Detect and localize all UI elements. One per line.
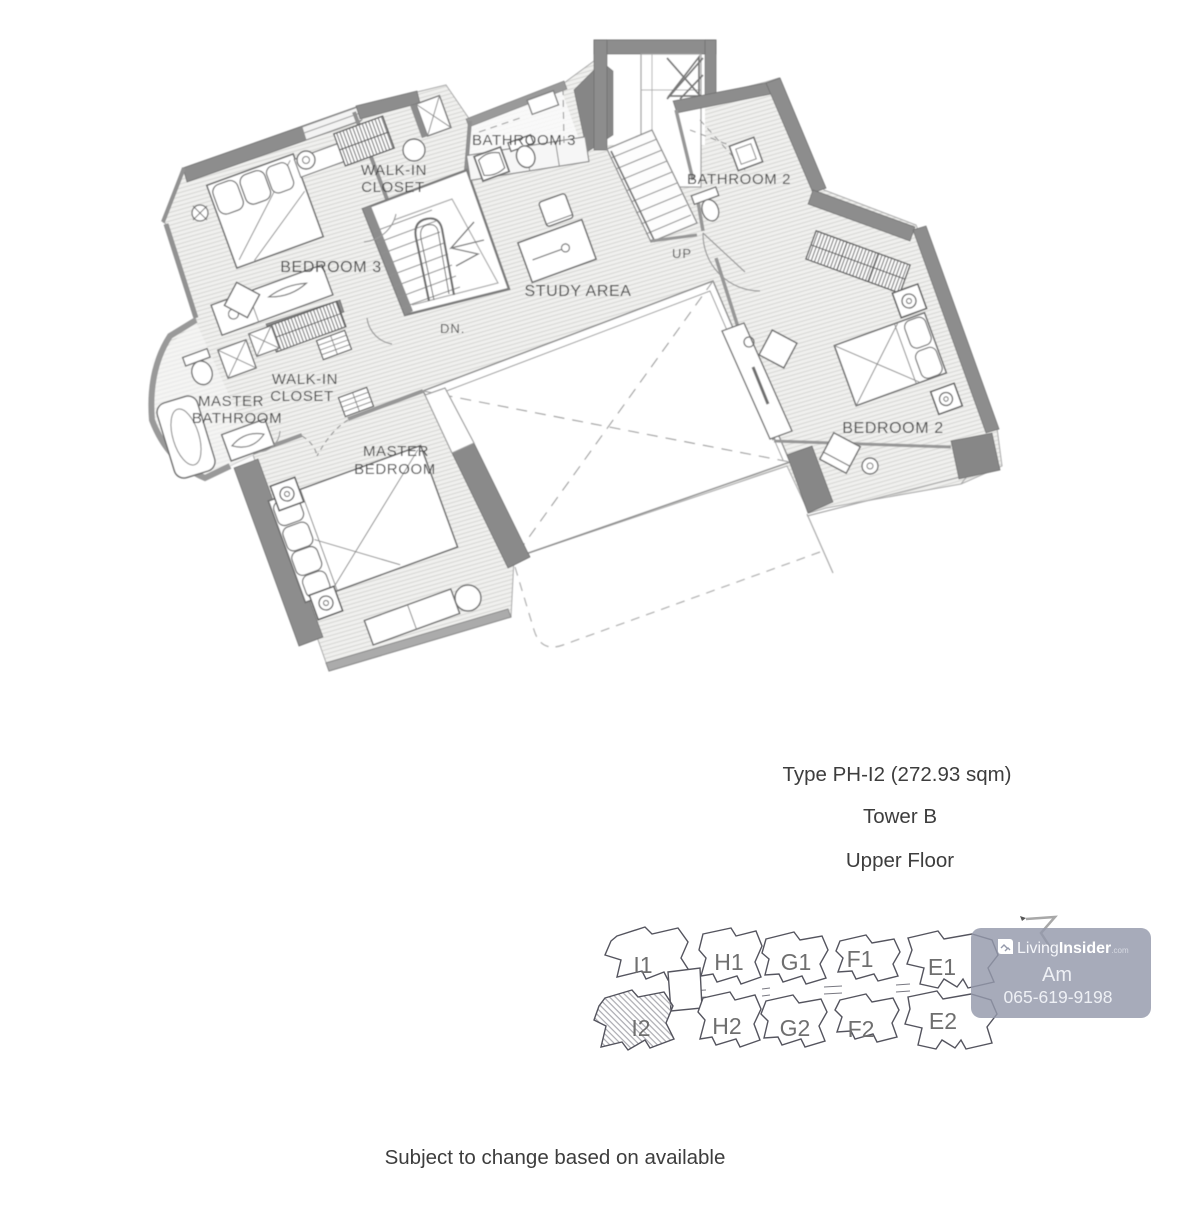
- svg-text:E2: E2: [929, 1008, 957, 1034]
- svg-text:BEDROOM 2: BEDROOM 2: [842, 420, 943, 437]
- svg-text:G2: G2: [780, 1015, 811, 1041]
- svg-text:I1: I1: [633, 952, 652, 978]
- svg-text:STUDY AREA: STUDY AREA: [524, 283, 631, 300]
- svg-text:Type PH-I2 (272.93 sqm): Type PH-I2 (272.93 sqm): [782, 763, 1011, 786]
- svg-text:MASTER: MASTER: [198, 393, 264, 410]
- svg-text:Am: Am: [1042, 964, 1072, 986]
- svg-text:F1: F1: [847, 946, 874, 972]
- svg-text:BATHROOM 3: BATHROOM 3: [472, 132, 576, 149]
- svg-text:CLOSET: CLOSET: [270, 388, 334, 405]
- svg-text:WALK-IN: WALK-IN: [361, 162, 427, 179]
- svg-text:065-619-9198: 065-619-9198: [1004, 987, 1113, 1007]
- svg-text:E1: E1: [928, 954, 956, 980]
- svg-text:BATHROOM 2: BATHROOM 2: [687, 171, 791, 188]
- svg-text:H2: H2: [712, 1013, 741, 1039]
- svg-text:G1: G1: [781, 949, 812, 975]
- svg-text:WALK-IN: WALK-IN: [272, 371, 338, 388]
- svg-text:CLOSET: CLOSET: [361, 179, 425, 196]
- svg-text:UP: UP: [672, 246, 692, 261]
- svg-text:BEDROOM 3: BEDROOM 3: [280, 259, 381, 276]
- svg-text:DN.: DN.: [440, 321, 465, 336]
- svg-text:F2: F2: [848, 1016, 875, 1042]
- svg-text:Upper Floor: Upper Floor: [846, 849, 954, 872]
- svg-text:H1: H1: [714, 949, 743, 975]
- svg-text:Tower B: Tower B: [863, 805, 937, 828]
- svg-text:Subject to change based on ava: Subject to change based on available: [385, 1146, 726, 1169]
- svg-text:BATHROOM: BATHROOM: [192, 410, 282, 427]
- svg-text:I2: I2: [631, 1015, 650, 1041]
- svg-text:MASTER: MASTER: [363, 443, 429, 460]
- svg-text:BEDROOM: BEDROOM: [354, 461, 436, 478]
